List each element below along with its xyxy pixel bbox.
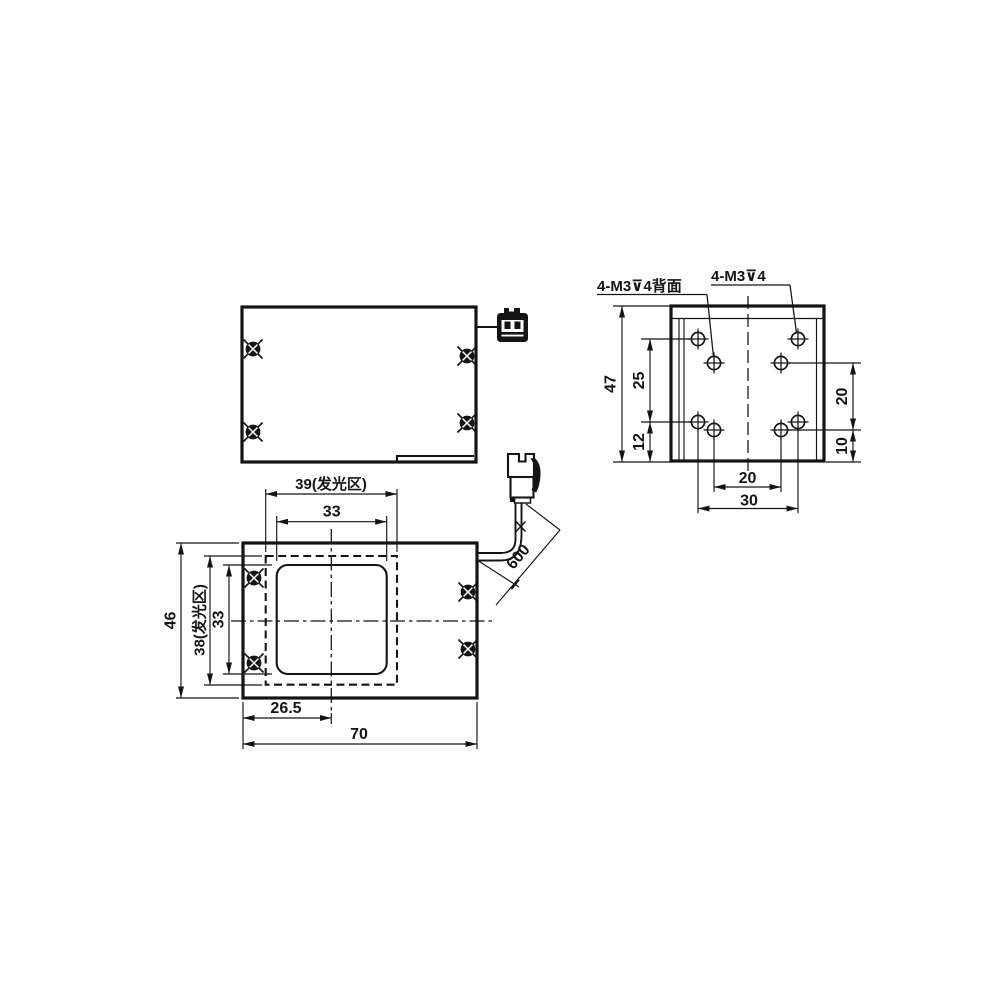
dim-inner-row-bottom-offset: 10 (834, 437, 851, 455)
dim-inner-row-spacing: 20 (834, 388, 851, 406)
connector-icon (497, 308, 528, 342)
dim-outer-row-bottom-offset: 12 (631, 433, 648, 451)
connector-latch (531, 458, 541, 493)
front-view: 39(发光区) 33 46 38(发光区) 33 26.5 70 (163, 475, 493, 749)
dim-emitting-area-height: 38(发光区) (191, 584, 209, 656)
dim-overall-height: 47 (603, 375, 620, 393)
top-holes-label: 4-M3⊽4 (711, 268, 766, 285)
engineering-drawing: 4-M3⊽4背面 4-M3⊽4 (0, 0, 1000, 1000)
top-view (242, 307, 528, 462)
back-view-outline (671, 306, 824, 461)
dim-emitting-area-width: 39(发光区) (295, 475, 367, 493)
cable-length-dimension: 600 (477, 504, 560, 605)
top-view-outline (242, 307, 476, 462)
dim-outer-col-spacing: 30 (740, 493, 758, 510)
dim-overall-height: 46 (163, 612, 180, 630)
mounting-hole-icon (788, 329, 809, 350)
mounting-hole-icon (704, 353, 725, 374)
cable-assembly: 600 (477, 454, 560, 605)
dim-window-height: 33 (211, 611, 228, 629)
screw-icon (245, 569, 264, 588)
back-holes-label: 4-M3⊽4背面 (597, 277, 682, 295)
back-view-dimension-lines (622, 306, 853, 509)
dim-inner-col-spacing: 20 (739, 470, 757, 487)
dim-center-offset: 26.5 (270, 700, 301, 717)
drawing-sheet: 4-M3⊽4背面 4-M3⊽4 (0, 0, 1000, 1000)
dim-cable-length: 600 (503, 541, 533, 572)
dim-window-width: 33 (323, 504, 341, 521)
top-view-notch (397, 456, 474, 461)
screw-icon (458, 414, 477, 433)
mounting-hole-icon (771, 420, 792, 441)
screw-icon (244, 423, 263, 442)
mounting-hole-icon (788, 412, 809, 433)
back-view: 4-M3⊽4背面 4-M3⊽4 (597, 268, 861, 513)
screw-icon (245, 654, 264, 673)
cable-connector-icon (508, 454, 541, 503)
screw-icon (459, 640, 478, 659)
screw-icon (244, 340, 263, 359)
mounting-hole-icon (704, 420, 725, 441)
mounting-hole-icon (771, 353, 792, 374)
dim-outer-row-spacing: 25 (631, 372, 648, 390)
screw-icon (458, 347, 477, 366)
screw-icon (459, 583, 478, 602)
dim-overall-width: 70 (350, 726, 368, 743)
